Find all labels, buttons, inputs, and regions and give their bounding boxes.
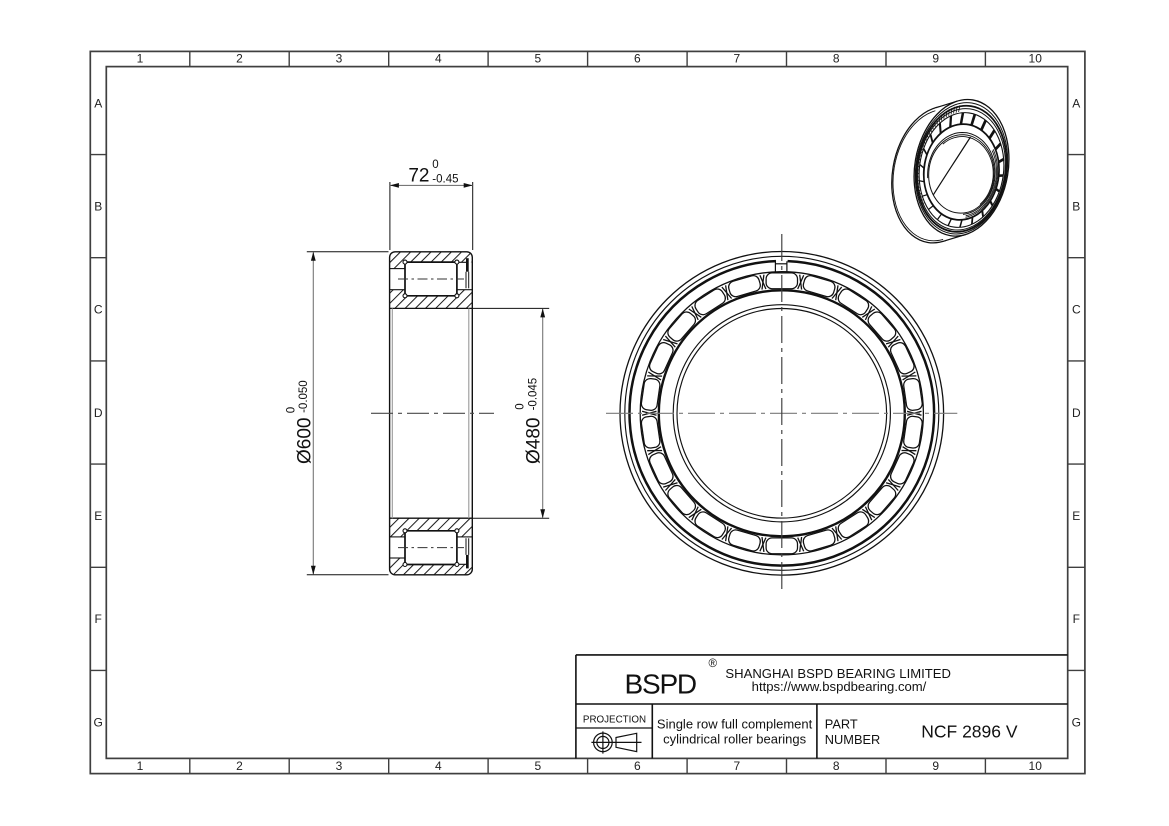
svg-text:2: 2 (236, 52, 243, 66)
svg-text:1: 1 (137, 759, 144, 773)
svg-text:F: F (1073, 612, 1080, 626)
svg-text:9: 9 (932, 52, 939, 66)
svg-text:2: 2 (236, 759, 243, 773)
svg-text:8: 8 (833, 759, 840, 773)
svg-text:PROJECTION: PROJECTION (583, 714, 646, 725)
svg-text:0: 0 (285, 407, 297, 413)
svg-text:-0.45: -0.45 (432, 173, 458, 185)
svg-text:8: 8 (833, 52, 840, 66)
svg-text:F: F (95, 612, 102, 626)
svg-text:72: 72 (408, 165, 429, 186)
svg-text:9: 9 (932, 759, 939, 773)
svg-text:D: D (94, 406, 103, 420)
svg-text:BSPD: BSPD (625, 668, 696, 699)
svg-text:®: ® (709, 658, 718, 670)
svg-text:NCF 2896 V: NCF 2896 V (921, 722, 1018, 742)
svg-text:NUMBER: NUMBER (825, 732, 880, 747)
svg-text:0: 0 (514, 403, 526, 409)
svg-text:cylindrical roller bearings: cylindrical roller bearings (663, 731, 807, 746)
svg-text:5: 5 (535, 52, 542, 66)
svg-text:G: G (1072, 715, 1081, 729)
svg-text:Ø480: Ø480 (523, 418, 544, 464)
svg-text:6: 6 (634, 759, 641, 773)
svg-text:10: 10 (1029, 759, 1043, 773)
svg-text:B: B (94, 200, 102, 214)
svg-text:https://www.bspdbearing.com/: https://www.bspdbearing.com/ (752, 679, 927, 694)
svg-text:4: 4 (435, 759, 442, 773)
svg-text:E: E (94, 509, 102, 523)
svg-text:7: 7 (733, 52, 740, 66)
svg-text:G: G (94, 715, 103, 729)
svg-text:10: 10 (1029, 52, 1043, 66)
svg-text:D: D (1072, 406, 1081, 420)
svg-text:A: A (1072, 96, 1080, 110)
svg-text:0: 0 (432, 159, 438, 171)
svg-text:PART: PART (825, 717, 858, 732)
svg-text:6: 6 (634, 52, 641, 66)
svg-text:E: E (1072, 509, 1080, 523)
svg-text:7: 7 (733, 759, 740, 773)
svg-text:5: 5 (535, 759, 542, 773)
svg-text:Single row full complement: Single row full complement (657, 717, 813, 732)
svg-text:C: C (94, 303, 103, 317)
svg-text:-0.050: -0.050 (298, 380, 310, 413)
svg-text:Ø600: Ø600 (295, 418, 316, 464)
svg-text:B: B (1072, 200, 1080, 214)
svg-text:C: C (1072, 303, 1081, 317)
svg-text:3: 3 (336, 759, 343, 773)
svg-text:3: 3 (336, 52, 343, 66)
svg-text:1: 1 (137, 52, 144, 66)
svg-text:-0.045: -0.045 (528, 378, 540, 411)
svg-text:A: A (94, 96, 102, 110)
svg-text:4: 4 (435, 52, 442, 66)
